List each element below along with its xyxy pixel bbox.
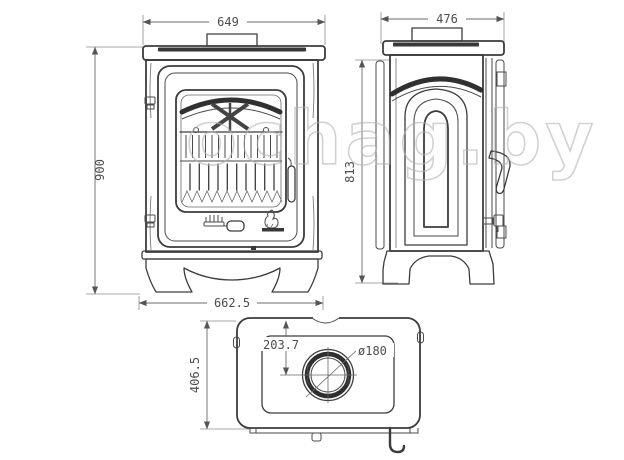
flue-collar-side [412,28,462,41]
dim-top-depth: 406.5 [188,321,250,429]
latch-knob-top [312,433,321,441]
top-plate-edge [158,48,306,52]
side-panel-slot [424,111,448,227]
top-plate-edge [393,43,479,47]
flue-outlet [280,347,357,403]
rear-heat-shield [376,61,384,249]
air-control-icon [204,215,244,231]
grate-tips [182,191,282,202]
dim-flue-offset: 203.7 [261,321,307,375]
dim-flue-diameter: ø180 [356,343,394,358]
dim-side-depth-label: 476 [436,12,458,26]
door-pivot-top [497,72,506,86]
dim-side-height-label: 813 [343,161,357,183]
legs-side [383,251,494,284]
dim-flue-diameter-label: ø180 [358,344,387,358]
top-view: 406.5 203.7 ø180 [188,316,424,452]
dim-front-height-label: 900 [93,159,107,181]
extension-lines [200,321,250,429]
notch-clear [313,316,339,319]
drawing-canvas: 649 900 662.5 [0,0,624,460]
grate-bars-lower [190,164,274,190]
door-handle-front [288,166,295,202]
legs-front [146,259,318,292]
handle-top-view [390,428,404,452]
dim-front-top-width: 649 [143,14,325,45]
side-panel-inner [414,99,458,236]
dim-front-base-width: 662.5 [139,295,323,310]
dim-front-base-label: 662.5 [214,296,250,310]
front-view: 649 900 662.5 [86,14,325,310]
flue-collar-front [207,34,257,46]
grate-bars-upper [186,135,277,158]
dim-flue-offset-label: 203.7 [263,338,299,352]
flame-icon [262,210,284,232]
dim-front-width-label: 649 [217,15,239,29]
side-view: 476 813 [343,11,510,284]
dim-top-depth-label: 406.5 [188,357,202,393]
technical-drawing: 649 900 662.5 [0,0,624,460]
handle-hook [288,158,291,166]
door-latch-pin [251,246,256,250]
top-view-body [237,318,420,428]
dim-front-height: 900 [86,47,143,294]
